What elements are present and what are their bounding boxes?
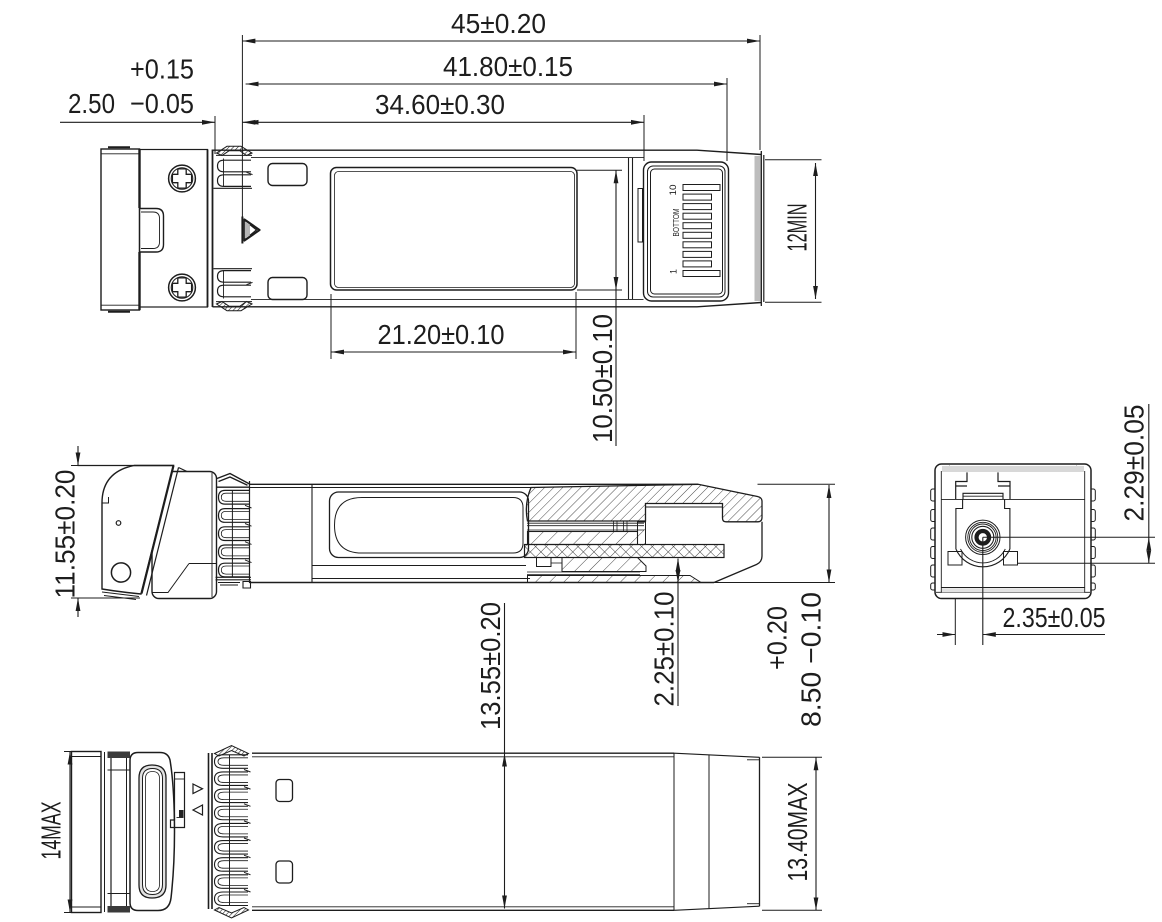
svg-text:10: 10: [668, 185, 678, 196]
svg-text:1: 1: [669, 269, 679, 274]
svg-text:34.60±0.30: 34.60±0.30: [375, 89, 505, 120]
svg-text:2.50: 2.50: [68, 88, 115, 119]
svg-text:41.80±0.15: 41.80±0.15: [443, 51, 573, 82]
svg-text:10.50±0.10: 10.50±0.10: [587, 314, 618, 443]
svg-text:12MIN: 12MIN: [782, 204, 813, 252]
svg-text:2.29±0.05: 2.29±0.05: [1119, 405, 1150, 522]
svg-text:21.20±0.10: 21.20±0.10: [378, 319, 505, 350]
svg-text:2.25±0.10: 2.25±0.10: [649, 592, 680, 707]
svg-text:BOTTOM: BOTTOM: [672, 208, 681, 236]
svg-text:+0.20: +0.20: [762, 606, 793, 670]
svg-text:13.55±0.20: 13.55±0.20: [475, 602, 506, 730]
svg-text:11.55±0.20: 11.55±0.20: [50, 470, 81, 599]
svg-text:13.40MAX: 13.40MAX: [782, 782, 813, 881]
svg-text:2.35±0.05: 2.35±0.05: [1003, 602, 1106, 633]
svg-text:−0.05: −0.05: [130, 88, 194, 119]
svg-text:14MAX: 14MAX: [36, 801, 67, 859]
svg-text:8.50 −0.10: 8.50 −0.10: [796, 592, 827, 727]
svg-text:45±0.20: 45±0.20: [451, 8, 546, 39]
svg-text:+0.15: +0.15: [130, 54, 194, 85]
